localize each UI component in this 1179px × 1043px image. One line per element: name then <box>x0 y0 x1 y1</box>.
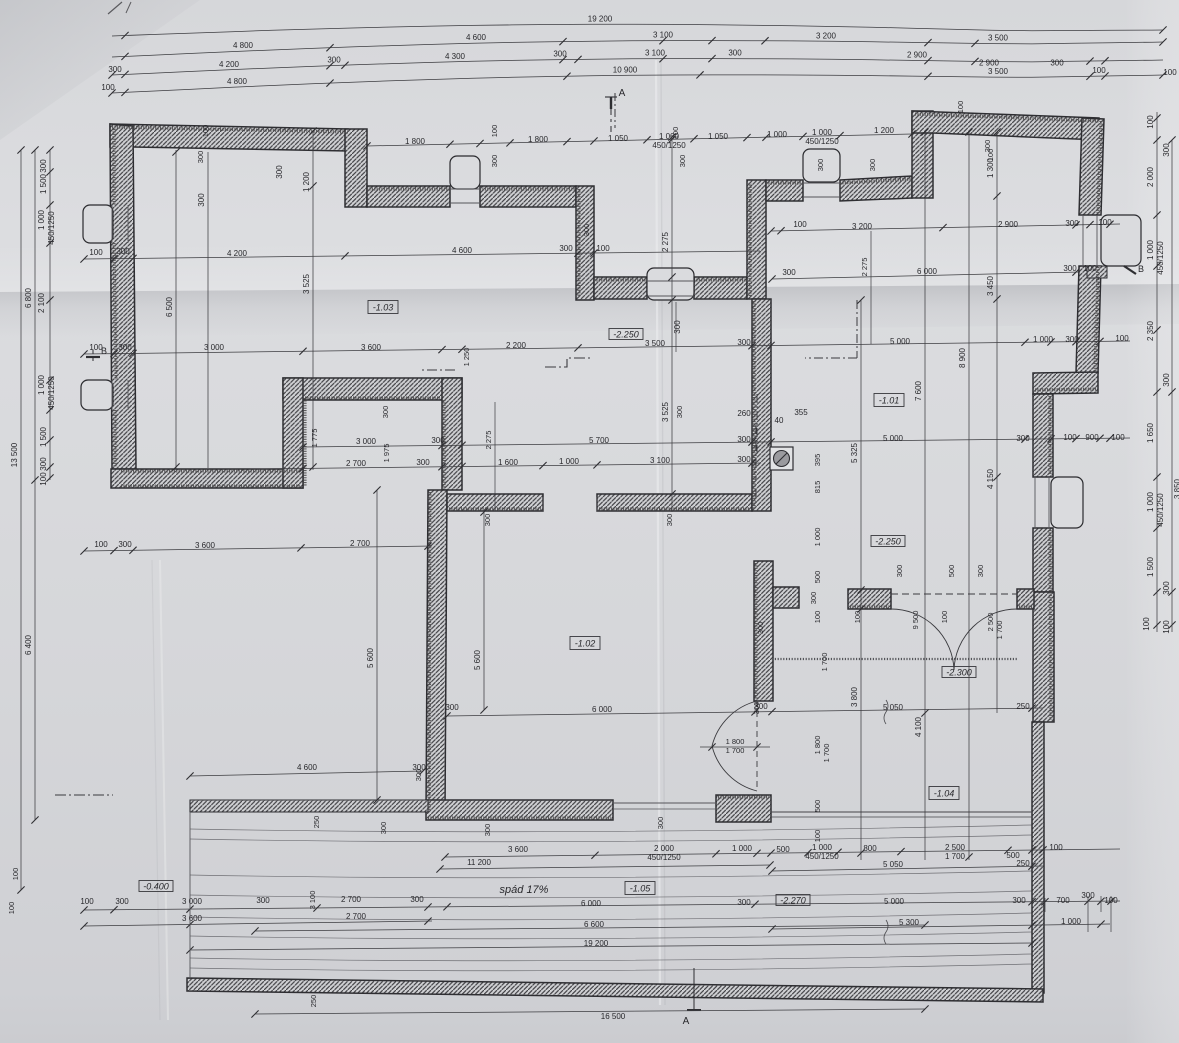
svg-text:4 150: 4 150 <box>986 468 995 489</box>
svg-text:450/1250: 450/1250 <box>1156 493 1165 527</box>
svg-text:300: 300 <box>410 895 424 904</box>
svg-text:3 800: 3 800 <box>850 686 859 707</box>
svg-text:1 050: 1 050 <box>608 134 629 143</box>
svg-text:815: 815 <box>813 481 822 494</box>
svg-text:3 000: 3 000 <box>356 437 377 446</box>
svg-text:300: 300 <box>675 406 684 419</box>
svg-text:3 600: 3 600 <box>182 914 203 923</box>
svg-text:3 100: 3 100 <box>645 49 666 58</box>
svg-text:-2.300: -2.300 <box>946 667 972 677</box>
svg-text:1 700: 1 700 <box>945 852 966 861</box>
svg-text:300: 300 <box>115 897 129 906</box>
svg-text:2 900: 2 900 <box>907 50 928 59</box>
svg-text:300: 300 <box>275 165 284 179</box>
svg-text:300: 300 <box>416 458 430 467</box>
svg-text:2 700: 2 700 <box>346 459 367 468</box>
svg-text:300: 300 <box>1162 373 1171 387</box>
svg-text:3 600: 3 600 <box>195 541 216 550</box>
svg-text:300: 300 <box>559 244 573 253</box>
svg-text:8 900: 8 900 <box>958 347 967 368</box>
svg-text:5 000: 5 000 <box>884 897 905 906</box>
svg-text:300: 300 <box>379 822 388 835</box>
svg-text:300: 300 <box>673 320 682 334</box>
svg-text:4 600: 4 600 <box>297 763 318 772</box>
svg-text:6 600: 6 600 <box>584 920 605 929</box>
svg-text:300: 300 <box>665 514 674 527</box>
svg-text:-2.270: -2.270 <box>780 895 806 905</box>
svg-text:1 000: 1 000 <box>1033 335 1054 344</box>
svg-text:300: 300 <box>431 436 445 445</box>
svg-text:11 200: 11 200 <box>467 858 491 867</box>
svg-text:1 000: 1 000 <box>1146 491 1155 512</box>
svg-text:2 000: 2 000 <box>654 844 675 853</box>
svg-text:300: 300 <box>868 159 877 172</box>
svg-text:1 600: 1 600 <box>498 458 519 467</box>
svg-text:-1.01: -1.01 <box>879 395 900 405</box>
svg-text:2 500: 2 500 <box>945 843 966 852</box>
svg-text:100: 100 <box>1083 264 1097 273</box>
svg-text:300: 300 <box>381 406 390 419</box>
svg-text:1 000: 1 000 <box>559 457 580 466</box>
svg-text:-1.05: -1.05 <box>630 883 652 893</box>
svg-text:5 600: 5 600 <box>366 647 375 668</box>
svg-text:300: 300 <box>1065 219 1079 228</box>
svg-text:260: 260 <box>737 409 751 418</box>
svg-text:100: 100 <box>1049 843 1063 852</box>
svg-text:1 500: 1 500 <box>39 426 48 447</box>
svg-text:6 400: 6 400 <box>24 634 33 655</box>
svg-text:1 775: 1 775 <box>310 429 319 448</box>
svg-text:2 275: 2 275 <box>484 431 493 450</box>
svg-text:5 325: 5 325 <box>850 442 859 463</box>
svg-text:3 850: 3 850 <box>1173 478 1179 499</box>
svg-text:4 300: 4 300 <box>445 52 466 61</box>
svg-text:4 200: 4 200 <box>219 60 240 69</box>
svg-text:300: 300 <box>118 540 132 549</box>
svg-text:1 500: 1 500 <box>1146 556 1155 577</box>
svg-text:300: 300 <box>1063 264 1077 273</box>
svg-text:1 000: 1 000 <box>767 130 788 139</box>
svg-text:A: A <box>619 88 626 99</box>
svg-text:100: 100 <box>94 540 108 549</box>
svg-text:300: 300 <box>490 155 499 168</box>
svg-text:2 000: 2 000 <box>1146 166 1155 187</box>
svg-text:300: 300 <box>1050 59 1064 68</box>
svg-text:3 100: 3 100 <box>308 891 317 910</box>
svg-text:100: 100 <box>956 101 965 114</box>
svg-text:40: 40 <box>775 416 784 425</box>
svg-text:3 525: 3 525 <box>661 401 670 422</box>
svg-text:900: 900 <box>1085 433 1099 442</box>
svg-text:700: 700 <box>1056 896 1070 905</box>
svg-text:100: 100 <box>1063 433 1077 442</box>
svg-text:5 300: 5 300 <box>899 918 920 927</box>
svg-text:450/1250: 450/1250 <box>647 853 681 862</box>
svg-text:250: 250 <box>309 995 318 1008</box>
svg-text:1 000: 1 000 <box>732 844 753 853</box>
svg-text:3 500: 3 500 <box>645 339 666 348</box>
svg-text:100: 100 <box>986 149 995 162</box>
svg-text:250: 250 <box>312 816 321 829</box>
svg-text:4 600: 4 600 <box>452 246 473 255</box>
svg-text:1 500: 1 500 <box>39 173 48 194</box>
svg-text:1 000: 1 000 <box>1061 917 1082 926</box>
svg-text:1 000: 1 000 <box>812 128 833 137</box>
svg-text:4 600: 4 600 <box>466 33 487 42</box>
svg-text:100: 100 <box>813 611 822 624</box>
svg-text:2 700: 2 700 <box>341 895 362 904</box>
svg-text:2 275: 2 275 <box>860 258 869 277</box>
svg-text:450/1250: 450/1250 <box>805 137 839 146</box>
svg-text:100: 100 <box>793 220 807 229</box>
svg-text:300: 300 <box>414 769 423 782</box>
svg-text:1 800: 1 800 <box>726 737 745 746</box>
svg-text:250: 250 <box>1016 702 1030 711</box>
svg-text:300: 300 <box>483 824 492 837</box>
svg-text:7 600: 7 600 <box>914 380 923 401</box>
svg-text:5 700: 5 700 <box>589 436 610 445</box>
svg-text:2 350: 2 350 <box>1146 320 1155 341</box>
svg-text:100: 100 <box>89 248 103 257</box>
svg-text:300: 300 <box>197 193 206 207</box>
svg-text:4 100: 4 100 <box>914 716 923 737</box>
svg-text:1 050: 1 050 <box>708 132 729 141</box>
svg-text:300: 300 <box>582 224 591 237</box>
svg-text:100: 100 <box>1142 617 1151 631</box>
svg-text:4 200: 4 200 <box>227 249 248 258</box>
svg-text:19 200: 19 200 <box>584 939 609 948</box>
svg-text:1 800: 1 800 <box>813 736 822 755</box>
svg-text:1 800: 1 800 <box>528 135 549 144</box>
svg-text:450/1250: 450/1250 <box>805 852 839 861</box>
svg-text:1 000: 1 000 <box>813 528 822 547</box>
svg-text:19 200: 19 200 <box>588 14 613 23</box>
svg-text:5 050: 5 050 <box>883 703 904 712</box>
svg-text:100: 100 <box>671 127 680 140</box>
svg-text:1 700: 1 700 <box>822 744 831 763</box>
svg-text:100: 100 <box>7 902 16 915</box>
svg-text:500: 500 <box>776 845 790 854</box>
svg-text:1 000: 1 000 <box>1146 239 1155 260</box>
svg-text:16 500: 16 500 <box>601 1012 626 1021</box>
svg-text:100: 100 <box>813 830 822 843</box>
svg-text:3 600: 3 600 <box>508 845 529 854</box>
svg-text:300: 300 <box>737 435 751 444</box>
svg-text:3 100: 3 100 <box>653 31 674 40</box>
svg-text:100: 100 <box>201 125 210 138</box>
svg-text:6 000: 6 000 <box>917 267 938 276</box>
svg-text:300: 300 <box>737 455 751 464</box>
svg-text:300: 300 <box>1162 581 1171 595</box>
svg-text:6 500: 6 500 <box>165 296 174 317</box>
svg-text:300: 300 <box>1162 143 1171 157</box>
svg-text:450/1250: 450/1250 <box>652 141 686 150</box>
svg-text:300: 300 <box>445 703 459 712</box>
svg-text:A: A <box>683 1016 690 1027</box>
svg-text:300: 300 <box>678 155 687 168</box>
svg-text:300: 300 <box>256 896 270 905</box>
svg-text:300: 300 <box>976 565 985 578</box>
svg-text:1 000: 1 000 <box>812 843 833 852</box>
svg-text:300: 300 <box>483 514 492 527</box>
svg-text:2 700: 2 700 <box>350 539 371 548</box>
svg-text:6 800: 6 800 <box>24 287 33 308</box>
svg-text:300: 300 <box>118 343 132 352</box>
svg-text:5 000: 5 000 <box>890 337 911 346</box>
svg-text:100: 100 <box>1162 620 1171 634</box>
svg-text:300: 300 <box>327 56 341 65</box>
svg-text:500: 500 <box>947 565 956 578</box>
svg-text:300: 300 <box>816 159 825 172</box>
svg-text:300: 300 <box>196 151 205 164</box>
svg-text:300: 300 <box>656 817 665 830</box>
svg-text:300: 300 <box>553 50 567 59</box>
svg-text:3 000: 3 000 <box>182 897 203 906</box>
svg-text:3 000: 3 000 <box>204 343 225 352</box>
svg-text:300: 300 <box>728 49 742 58</box>
svg-text:395: 395 <box>813 454 822 467</box>
svg-text:5 050: 5 050 <box>883 860 904 869</box>
svg-text:2 700: 2 700 <box>346 912 367 921</box>
svg-text:3 200: 3 200 <box>816 31 837 40</box>
svg-text:450/1250: 450/1250 <box>47 211 56 245</box>
svg-text:2 500: 2 500 <box>986 613 995 632</box>
svg-text:100: 100 <box>89 343 103 352</box>
svg-text:3 600: 3 600 <box>361 343 382 352</box>
svg-text:300: 300 <box>809 592 818 605</box>
svg-text:300: 300 <box>1012 896 1026 905</box>
svg-text:6 000: 6 000 <box>581 899 602 908</box>
svg-text:100: 100 <box>1146 115 1155 129</box>
svg-text:300: 300 <box>116 247 130 256</box>
svg-text:2 100: 2 100 <box>37 292 46 313</box>
svg-text:100: 100 <box>596 244 610 253</box>
svg-text:300: 300 <box>895 565 904 578</box>
svg-text:300: 300 <box>108 65 122 74</box>
svg-text:300: 300 <box>39 159 48 173</box>
svg-text:355: 355 <box>794 408 808 417</box>
svg-text:500: 500 <box>813 800 822 813</box>
svg-text:4 800: 4 800 <box>227 77 248 86</box>
svg-text:100: 100 <box>1098 218 1112 227</box>
svg-text:300: 300 <box>756 622 765 635</box>
svg-text:250: 250 <box>1016 859 1030 868</box>
svg-text:1 000: 1 000 <box>37 209 46 230</box>
svg-text:500: 500 <box>813 571 822 584</box>
svg-text:300: 300 <box>737 898 751 907</box>
svg-text:300: 300 <box>1016 434 1030 443</box>
svg-text:2 275: 2 275 <box>661 231 670 252</box>
svg-text:100: 100 <box>490 125 499 138</box>
svg-text:-2.250: -2.250 <box>613 329 639 339</box>
svg-text:1 700: 1 700 <box>820 653 829 672</box>
svg-text:1 000: 1 000 <box>37 374 46 395</box>
svg-text:1 700: 1 700 <box>995 621 1004 640</box>
svg-text:3 450: 3 450 <box>986 275 995 296</box>
svg-text:100: 100 <box>1092 66 1106 75</box>
svg-text:2 900: 2 900 <box>998 220 1019 229</box>
svg-text:1 200: 1 200 <box>874 126 895 135</box>
svg-text:-2.250: -2.250 <box>875 536 901 546</box>
svg-text:spád 17%: spád 17% <box>500 884 549 896</box>
svg-text:100: 100 <box>1111 433 1125 442</box>
svg-text:100: 100 <box>940 611 949 624</box>
svg-text:1 250: 1 250 <box>462 348 471 367</box>
svg-text:5 000: 5 000 <box>883 434 904 443</box>
svg-text:3 525: 3 525 <box>302 273 311 294</box>
svg-text:B: B <box>1138 264 1144 274</box>
svg-text:3 500: 3 500 <box>988 67 1009 76</box>
svg-text:300: 300 <box>782 268 796 277</box>
svg-text:-1.02: -1.02 <box>575 638 596 648</box>
svg-text:5 600: 5 600 <box>473 649 482 670</box>
svg-text:100: 100 <box>1115 334 1129 343</box>
svg-text:10 900: 10 900 <box>613 65 638 74</box>
svg-text:450/1250: 450/1250 <box>47 376 56 410</box>
svg-text:3 500: 3 500 <box>988 34 1009 43</box>
svg-text:300: 300 <box>737 338 751 347</box>
svg-text:1 800: 1 800 <box>405 137 426 146</box>
svg-text:2 200: 2 200 <box>506 341 527 350</box>
svg-text:450/1250: 450/1250 <box>1156 241 1165 275</box>
svg-text:1 650: 1 650 <box>1146 422 1155 443</box>
svg-text:300: 300 <box>1065 335 1079 344</box>
svg-text:1 200: 1 200 <box>302 171 311 192</box>
svg-text:800: 800 <box>863 844 877 853</box>
svg-text:3 100: 3 100 <box>650 456 671 465</box>
svg-text:13 500: 13 500 <box>10 442 19 467</box>
svg-text:100: 100 <box>853 611 862 624</box>
svg-text:4 800: 4 800 <box>233 41 254 50</box>
svg-text:300: 300 <box>752 702 761 715</box>
svg-text:100: 100 <box>11 868 20 881</box>
svg-text:100: 100 <box>39 472 48 486</box>
svg-text:100: 100 <box>80 897 94 906</box>
svg-text:9 500: 9 500 <box>911 611 920 630</box>
svg-text:100: 100 <box>101 83 115 92</box>
svg-text:-1.03: -1.03 <box>373 302 394 312</box>
svg-text:1 975: 1 975 <box>382 444 391 463</box>
svg-text:100: 100 <box>1163 68 1177 77</box>
svg-text:-1.04: -1.04 <box>934 788 955 798</box>
svg-text:-0.400: -0.400 <box>143 881 169 891</box>
svg-text:3 200: 3 200 <box>852 222 873 231</box>
svg-text:6 000: 6 000 <box>592 705 613 714</box>
svg-text:300: 300 <box>39 457 48 471</box>
